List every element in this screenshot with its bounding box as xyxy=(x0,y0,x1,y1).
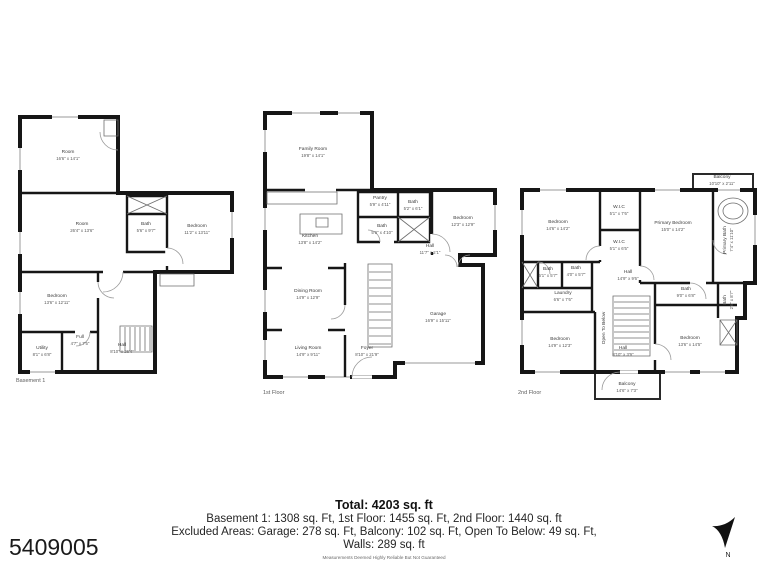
room-label: Hall8'10" x 26'4" xyxy=(110,343,134,355)
room-label: Pantry5'9" x 4'11" xyxy=(370,196,391,208)
room-label: W.I.C5'1" x 6'5" xyxy=(610,240,629,252)
floor-caption-basement: Basement 1 xyxy=(16,378,45,384)
room-label: Kitchen13'8" x 14'2" xyxy=(298,234,322,246)
room-label: Bedroom13'6" x 12'11" xyxy=(44,294,70,306)
room-label: Bath5'2" x 6'1" xyxy=(404,200,423,212)
room-label: Utility8'1" x 6'8" xyxy=(33,346,52,358)
room-label: Bath5'1" x 5'7" xyxy=(539,267,558,279)
room-label: Hall14'9" x 9'6" xyxy=(617,270,638,282)
room-label: Balcony14'6" x 7'3" xyxy=(616,382,637,394)
room-label: Hall11'7" x 2'1" xyxy=(420,244,441,256)
room-label: Living Room14'9" x 9'11" xyxy=(295,346,322,358)
room-label: Room16'6" x 14'1" xyxy=(56,150,80,162)
room-label: Open To Below xyxy=(602,312,608,344)
room-label: Bath2'6" x 8'7" xyxy=(723,291,735,310)
floor-plan-sheet: Room16'6" x 14'1" Room26'4" x 13'6" Bath… xyxy=(0,0,768,576)
compass-north-label: N xyxy=(725,552,730,559)
disclaimer-text: Measurements Deemed Highly Reliable But … xyxy=(0,555,768,560)
floor-caption-2nd: 2nd Floor xyxy=(518,390,541,396)
area-summary: Total: 4203 sq. ft Basement 1: 1308 sq. … xyxy=(0,498,768,560)
room-label: Room26'4" x 13'6" xyxy=(70,222,94,234)
room-label: Bedroom14'9" x 12'3" xyxy=(548,337,572,349)
walls-area-text: Walls: 289 sq. ft xyxy=(0,539,768,551)
room-label: Garage16'9" x 15'11" xyxy=(425,312,451,324)
room-label: Bath4'0" x 5'7" xyxy=(567,266,586,278)
room-label: Full4'7" x 7'5" xyxy=(71,335,90,347)
room-label: Dining Room14'9" x 12'9" xyxy=(294,289,322,301)
room-label: Primary Bath7'4" x 11'10" xyxy=(723,226,735,254)
room-label: Bath5'9" x 4'10" xyxy=(371,224,392,236)
room-label: Bedroom12'3" x 12'9" xyxy=(451,216,475,228)
floor-caption-1st: 1st Floor xyxy=(263,390,284,396)
room-label: W.I.C5'1" x 7'6" xyxy=(610,205,629,217)
compass: N xyxy=(704,512,752,564)
room-label: Hall8'10" x 3'9" xyxy=(612,346,633,358)
room-label: Bath5'6" x 9'7" xyxy=(137,222,156,234)
room-label: Foyer8'10" x 21'9" xyxy=(355,346,379,358)
floor-plan-drawings xyxy=(0,0,768,576)
photo-id: 5409005 xyxy=(9,534,99,561)
room-label: Family Room19'8" x 14'1" xyxy=(299,147,327,159)
room-label: Bath9'0" x 6'8" xyxy=(677,287,696,299)
room-label: Bedroom14'6" x 14'2" xyxy=(546,220,570,232)
total-area-text: Total: 4203 sq. ft xyxy=(0,498,768,512)
basement-plan-drawing xyxy=(20,117,232,372)
floor-areas-text: Basement 1: 1308 sq. Ft, 1st Floor: 1455… xyxy=(0,513,768,525)
room-label: Bedroom13'6" x 14'5" xyxy=(678,336,702,348)
room-label: Balcony10'10" x 2'11" xyxy=(709,175,735,187)
second-floor-plan-drawing xyxy=(522,174,755,399)
room-label: Laundry6'6" x 7'6" xyxy=(554,291,573,303)
room-label: Primary Bedroom15'0" x 14'2" xyxy=(654,221,691,233)
room-label: Bedroom11'2" x 13'11" xyxy=(184,224,209,236)
excluded-areas-text: Excluded Areas: Garage: 278 sq. Ft, Balc… xyxy=(0,526,768,538)
